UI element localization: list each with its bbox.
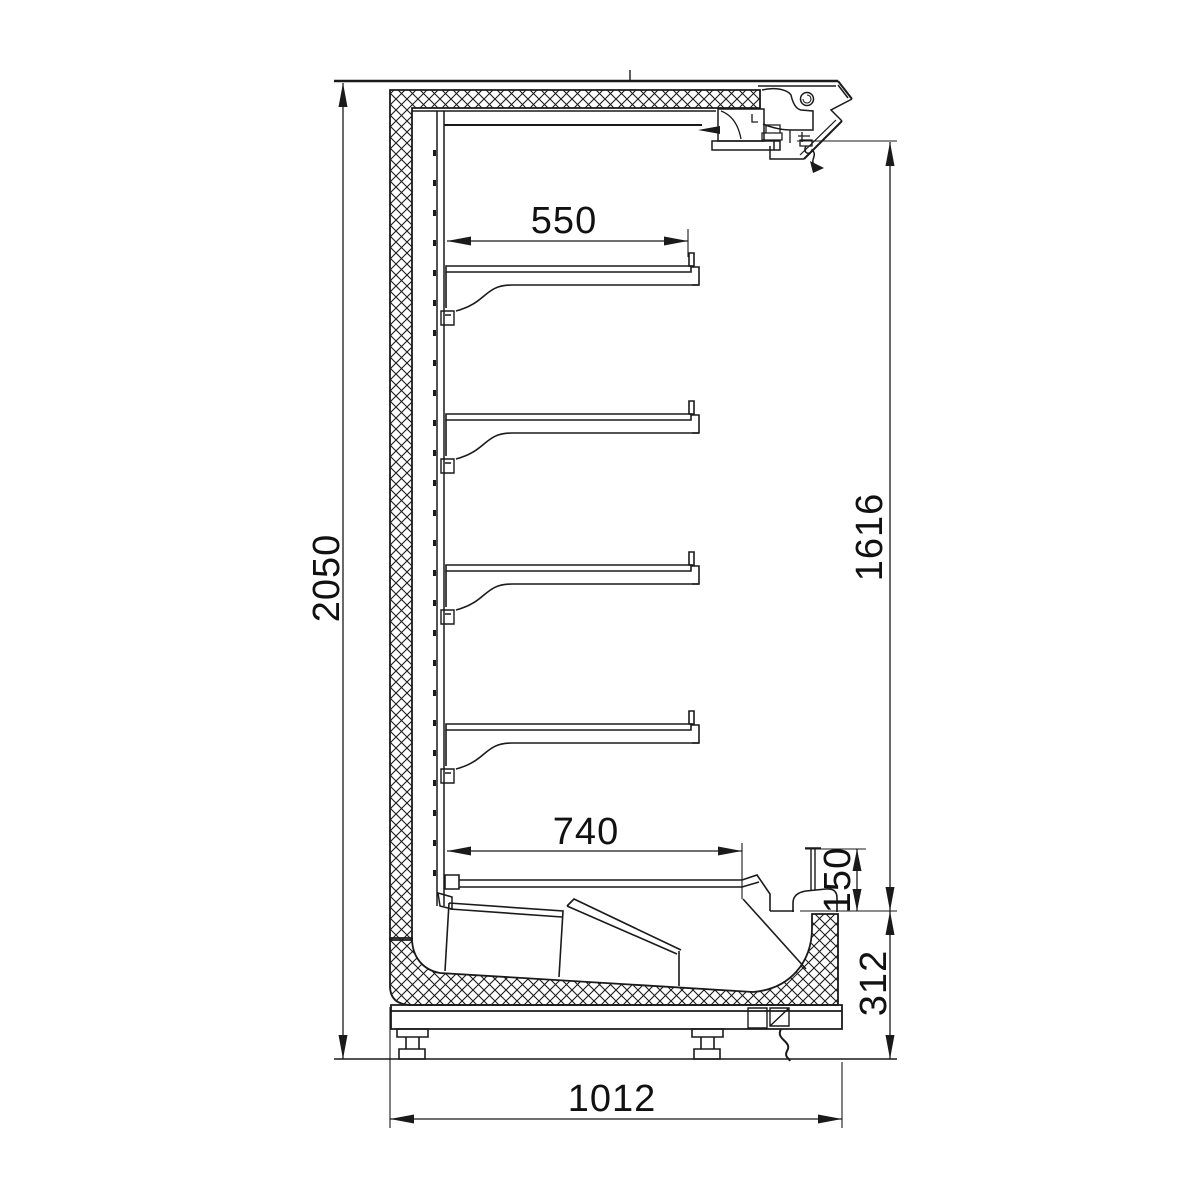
back-standard-foot (438, 893, 452, 909)
shelf-3 (441, 552, 699, 624)
shelf-bracket-clip (441, 610, 454, 624)
arrow-left-icon (447, 237, 471, 246)
arrow-right-icon (818, 1115, 842, 1124)
lamp-tube-spiral (803, 95, 811, 103)
arrow-up-icon (886, 142, 895, 166)
dim-label-overall-height: 2050 (306, 534, 348, 623)
cabinet-side-section-drawing: 2050 550 1616 150 (0, 0, 1200, 1200)
dimension-front-height: 1616 (797, 141, 897, 911)
canopy-slant-top (838, 81, 852, 99)
dim-label-base-height: 312 (853, 950, 895, 1016)
dimension-overall-depth: 1012 (390, 1007, 842, 1128)
shelf-bracket (446, 272, 699, 311)
technical-drawing-page: 2050 550 1616 150 (0, 0, 1200, 1200)
dimension-shelf-depth: 550 (447, 200, 688, 257)
well-deck-panel (445, 903, 563, 977)
price-hook-tip (810, 161, 824, 173)
shelf-plate (446, 414, 691, 420)
shelf-bracket (446, 730, 699, 769)
shelf-plate (446, 266, 691, 272)
dimension-well-depth: 740 (447, 811, 742, 899)
dim-label-front-height: 1616 (849, 493, 891, 582)
power-cable (780, 1029, 790, 1061)
dim-label-front-riser: 150 (817, 847, 859, 913)
shelf-1 (441, 253, 699, 325)
arrow-right-icon (664, 237, 688, 246)
canopy-underside (770, 146, 804, 159)
well-front-kick (742, 875, 770, 911)
well-top-rail (459, 880, 742, 887)
insulation-bottom-front (390, 914, 838, 1005)
air-outlet-detail (752, 114, 758, 122)
shelf-2 (441, 401, 699, 473)
dim-label-overall-depth: 1012 (568, 1078, 657, 1120)
well-front-wall (743, 899, 806, 969)
shelf-bracket (446, 420, 699, 459)
arrow-down-icon (886, 1035, 895, 1059)
dimension-front-riser: 150 (805, 847, 866, 913)
shelf-bracket-clip (441, 311, 454, 325)
foot-left (397, 1029, 428, 1059)
dimension-base-height: 312 (853, 911, 895, 1059)
arrow-up-icon (339, 83, 348, 107)
dim-label-shelf-depth: 550 (531, 200, 597, 242)
base-frame (391, 1005, 842, 1061)
canopy-tip-arrow (831, 85, 852, 121)
well-ramp-panel (567, 899, 681, 986)
canopy-clip-detail (798, 132, 812, 146)
arrow-up-icon (886, 911, 895, 935)
dim-label-well-depth: 740 (553, 811, 619, 853)
shelf-bracket-clip (441, 769, 454, 783)
dimension-overall-height: 2050 (306, 83, 348, 1059)
shelf-bracket (446, 571, 699, 610)
arrow-left-icon (390, 1115, 414, 1124)
shelf-plate (446, 565, 691, 571)
air-outlet-curve (721, 111, 741, 139)
arrow-down-icon (339, 1035, 348, 1059)
shelf-4 (441, 711, 699, 783)
insulation-panels (390, 90, 838, 1005)
arrow-down-icon (886, 887, 895, 911)
shelves (441, 253, 699, 783)
arrow-right-icon (718, 847, 742, 856)
base-well (445, 848, 837, 986)
light-housing (762, 89, 813, 130)
arrow-left-icon (447, 847, 471, 856)
shelf-plate (446, 724, 691, 730)
foot-right (692, 1029, 723, 1059)
well-rail-end-block (445, 875, 459, 889)
shelf-bracket-clip (441, 459, 454, 473)
airflow-arrow (698, 126, 720, 134)
